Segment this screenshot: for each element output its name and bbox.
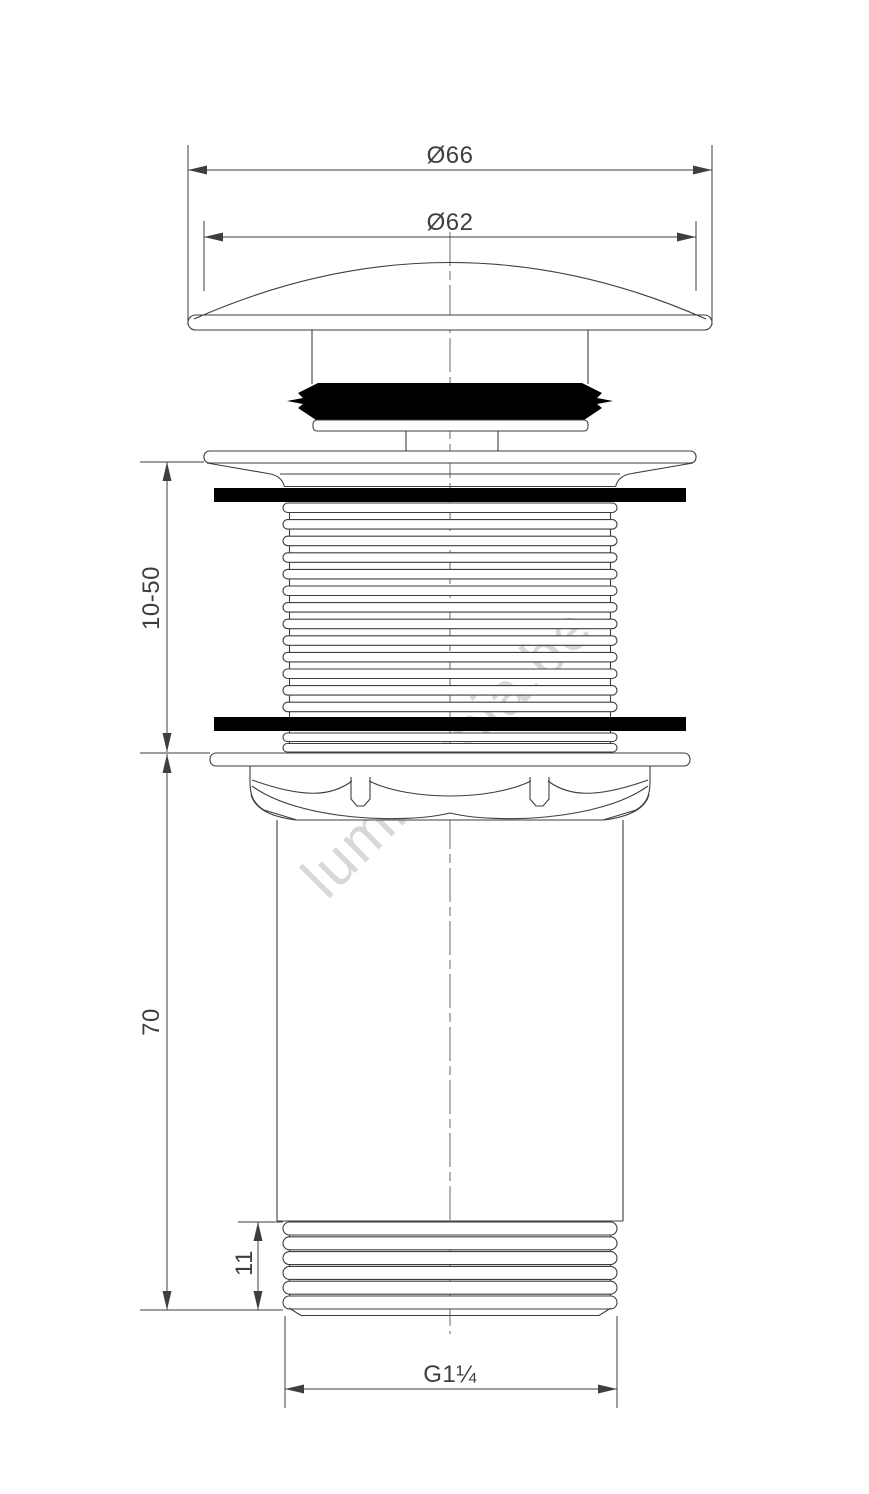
thread-ridge [283, 636, 617, 646]
dim62-arrow-right [677, 233, 696, 242]
dim11-arrow-top [254, 1222, 263, 1241]
dimg-arrow-right [598, 1385, 617, 1394]
cap-seal-gasket [287, 383, 613, 420]
thread-ridge [283, 702, 617, 712]
thread-ridge [283, 1296, 617, 1309]
thread-ridge [283, 1222, 617, 1235]
thread-ridge [283, 503, 617, 513]
backnut-body [250, 764, 650, 820]
thread-ridge [283, 1252, 617, 1265]
thread-ridge [283, 520, 617, 530]
label-thread-size: G1¼ [423, 1361, 477, 1389]
thread-ridge [283, 569, 617, 579]
upper-rubber-washer [214, 488, 686, 502]
label-clamp-range: 10-50 [138, 566, 166, 630]
thread-ridge [283, 744, 617, 753]
dim1050-arrow-bottom [163, 733, 172, 752]
thread-ridge [283, 652, 617, 662]
dim11-arrow-bottom [254, 1291, 263, 1310]
thread-ridge [283, 586, 617, 596]
label-body-length: 70 [138, 1008, 166, 1036]
thread-ridge [283, 1237, 617, 1250]
backnut-plate [210, 753, 690, 766]
dim66-arrow-left [188, 166, 207, 175]
gasket-washer-strip [313, 420, 588, 431]
dim1050-arrow-top [163, 462, 172, 481]
thread-ridge [283, 536, 617, 546]
dimg-arrow-left [285, 1385, 304, 1394]
flange-taper-right [616, 463, 694, 487]
label-lower-thread-length: 11 [231, 1250, 259, 1276]
thread-ridge [283, 553, 617, 563]
thread-ridge [283, 669, 617, 679]
dim62-arrow-left [204, 233, 223, 242]
lower-rubber-washer [214, 717, 686, 731]
bottom-thread-section [283, 1222, 617, 1316]
technical-drawing-basin-waste: lumimania.be [0, 0, 869, 1494]
thread-ridge [283, 1281, 617, 1294]
cap-base-bar [188, 315, 712, 330]
label-cap-inner-diameter: Ø62 [427, 209, 474, 237]
thread-ridge [283, 686, 617, 696]
label-cap-outer-diameter: Ø66 [427, 142, 474, 170]
thread-ridge [283, 603, 617, 613]
flange-taper-left [207, 463, 285, 487]
locking-backnut [210, 753, 690, 820]
dim66-arrow-right [693, 166, 712, 175]
dim70-arrow-bottom [163, 1291, 172, 1310]
thread-ridge [283, 733, 617, 742]
thread-ridge [283, 1266, 617, 1279]
thread-ridge [283, 619, 617, 629]
dim70-arrow-top [163, 754, 172, 773]
flange-plate [204, 451, 696, 463]
